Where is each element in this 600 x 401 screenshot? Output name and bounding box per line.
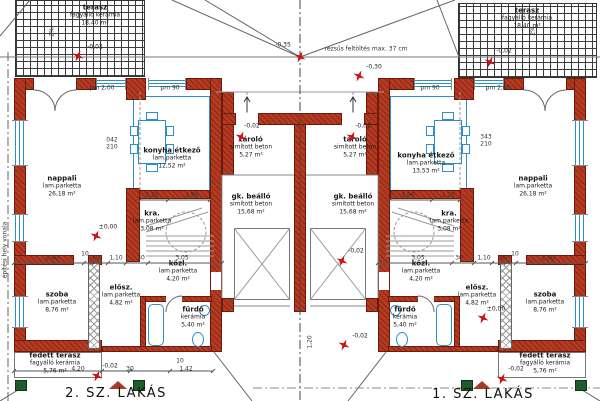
room-area: 15,68 m² [230,208,272,215]
chair [442,112,454,120]
room-finish: lam.parketta [159,268,197,275]
room-name: terasz [502,7,552,15]
room-label: kra.lam.parketta3,08 m² [430,210,468,233]
dimension-text: 1,90 [401,192,414,199]
room-label: szobalam.parketta8,76 m² [38,291,76,314]
wall [258,113,342,125]
room-area: 13,53 m² [397,167,454,174]
room-finish: lam.parketta [526,299,564,306]
wall [126,78,146,100]
window [12,296,28,328]
level-value: -0,02 [496,48,512,55]
dimension-text: 1,42 [179,366,192,373]
floor-plan-canvas: 2. SZ. LAKÁS 1. SZ. LAKÁS teraszfagyálló… [0,0,600,401]
room-area: 5,40 m² [393,321,417,328]
door-opening [524,79,566,89]
dimension-text: 10 [81,251,89,258]
room-area: 26,18 m² [514,190,552,197]
dimension-text: pm 2,00 [486,85,511,92]
dimension-text: 2% [49,27,56,37]
wall [14,255,74,265]
chair [426,126,434,136]
dimension-text: 4,20 [71,366,84,373]
room-area: 18,40 m² [502,22,552,29]
room-label: gk. beállósimított beton15,68 m² [230,193,272,216]
room-name: konyha étkező [397,152,454,160]
chair [166,126,174,136]
room-area: 5,76 m² [519,367,570,374]
room-area: 5,27 m² [230,151,272,158]
room-name: kra. [430,210,468,218]
room-name: fedett terasz [29,352,80,360]
dimension-text: 30 [126,366,134,373]
room-label: fedett teraszfagyálló kerámia5,76 m² [519,352,570,375]
room-finish: lam.parketta [514,183,552,190]
toilet-right [396,332,408,347]
bathtub-right [436,304,452,346]
room-finish: lam.parketta [133,218,171,225]
dimension-text: 30 [137,255,145,262]
dimension-text: 3,05 [411,255,424,262]
wall [366,298,378,312]
room-label: elősz.lam.parketta4,82 m² [102,284,140,307]
room-label: közl.lam.parketta4,20 m² [402,260,440,283]
wall [294,113,306,312]
window [572,120,588,166]
room-name: gk. beálló [332,193,374,201]
toilet-left [192,332,204,347]
room-label: elősz.lam.parketta4,82 m² [458,284,496,307]
dimension-text: 2,40 [45,255,58,262]
room-finish: kerámia [181,314,205,321]
room-label: gk. beállósimított beton15,68 m² [332,193,374,216]
room-label: fürdőkerámia5,40 m² [393,306,417,329]
door-opening [379,272,389,290]
level-value: -0,02 [508,366,524,373]
room-label: teraszfagyálló kerámia18,40 m² [70,4,120,27]
room-finish: lam.parketta [143,155,200,162]
room-area: 5,40 m² [181,321,205,328]
room-name: tároló [334,136,376,144]
room-area: 8,76 m² [526,306,564,313]
room-name: kra. [133,210,171,218]
window [572,214,588,242]
room-label: nappalilam.parketta26,18 m² [514,175,552,198]
column-marker [15,380,27,391]
room-name: fürdő [181,306,205,314]
room-label: konyha étkezőlam.parketta12,52 m² [143,147,200,170]
level-value: -0,02 [352,333,368,340]
room-label: fürdőkerámia5,40 m² [181,306,205,329]
level-marker-icon [351,68,367,84]
room-label: nappalilam.parketta26,18 m² [43,175,81,198]
room-area: 12,52 m² [143,162,200,169]
room-finish: simított beton [334,144,376,151]
unit-title-right: 1. SZ. LAKÁS [432,387,534,401]
wall [388,346,498,352]
room-area: 4,20 m² [159,275,197,282]
level-value: -0,02 [348,248,364,255]
chair [130,144,138,154]
room-finish: kerámia [393,314,417,321]
wall [526,255,586,265]
room-finish: fagyálló kerámia [502,15,552,22]
wall [454,78,474,100]
dimension-text: 3,05 [175,255,188,262]
room-finish: lam.parketta [102,292,140,299]
room-name: tároló [230,136,272,144]
room-area: 8,76 m² [38,306,76,313]
dimension-text: 1,10 [109,255,122,262]
level-value: -0,30 [366,64,382,71]
level-value: -0,02 [244,123,260,130]
dimension-text: 30 [455,255,463,262]
room-name: fedett terasz [519,352,570,360]
room-area: 15,68 m² [332,208,374,215]
room-finish: lam.parketta [430,218,468,225]
room-name: szoba [526,291,564,299]
room-area: 5,27 m² [334,151,376,158]
room-area: 3,08 m² [430,225,468,232]
dimension-text: pm 90 [420,85,439,92]
room-label: konyha étkezőlam.parketta13,53 m² [397,152,454,175]
dimension-text: 210 [480,141,491,148]
dimension-text: 1,10 [441,192,454,199]
dimension-text: 343 [480,134,491,141]
room-label: szobalam.parketta8,76 m² [526,291,564,314]
dimension-text: 60 [500,255,508,262]
room-name: szoba [38,291,76,299]
chair [462,126,470,136]
dimension-text: rézsűs feltöltés max. 37 cm [325,46,408,53]
room-area: 18,40 m² [70,19,120,26]
room-label: teraszfagyálló kerámia18,40 m² [502,7,552,30]
chair [146,112,158,120]
dimension-text: 1,20 [307,335,314,348]
level-value: -0,35 [275,42,291,49]
dimension-text: 10 [511,251,519,258]
room-name: elősz. [458,284,496,292]
wall [222,113,236,125]
window [572,296,588,328]
dimension-text: pm 90 [160,85,179,92]
room-finish: lam.parketta [402,268,440,275]
dimension-text: építési hely vonala [2,222,9,279]
chair [462,144,470,154]
level-value: ±0,00 [487,306,505,313]
dimension-text: 1,10 [145,192,158,199]
door-opening [166,296,182,302]
room-finish: simított beton [230,201,272,208]
wall [222,92,234,175]
wardrobe-shaft-left [88,263,100,349]
column-marker [575,380,587,391]
door-opening [211,272,221,290]
room-finish: fagyálló kerámia [70,12,120,19]
room-finish: fagyálló kerámia [519,360,570,367]
chair [130,126,138,136]
room-finish: simított beton [332,201,374,208]
level-marker-icon [292,49,308,65]
room-area: 4,20 m² [402,275,440,282]
room-name: konyha étkező [143,147,200,155]
wall [222,298,234,312]
dimension-text: 1,90 [185,192,198,199]
room-label: közl.lam.parketta4,20 m² [159,260,197,283]
room-area: 3,08 m² [133,225,171,232]
room-label: kra.lam.parketta3,08 m² [133,210,171,233]
wall [102,346,212,352]
wall [140,296,146,348]
window [12,214,28,242]
room-finish: simított beton [230,144,272,151]
room-name: nappali [514,175,552,183]
dimension-text: 210 [106,144,117,151]
wall [210,78,222,352]
dimension-text: 2,40 [541,255,554,262]
dimension-text: 042 [106,137,117,144]
carport-slab-left [234,228,290,300]
door-opening [34,79,76,89]
dimension-text: 10 [176,358,184,365]
room-finish: lam.parketta [43,183,81,190]
level-marker-icon [336,337,352,353]
dimension-text: 60 [92,255,100,262]
window [12,120,28,166]
room-area: 4,82 m² [102,299,140,306]
room-name: terasz [70,4,120,12]
level-value: ±0,00 [99,224,117,231]
bathtub-left [148,304,164,346]
dimension-text: pm 2,00 [90,85,115,92]
room-name: fürdő [393,306,417,314]
level-value: -0,02 [355,123,371,130]
dimension-text: 2% [530,26,537,36]
unit-title-left: 2. SZ. LAKÁS [65,386,167,401]
room-finish: lam.parketta [397,160,454,167]
door-opening [418,296,434,302]
room-name: nappali [43,175,81,183]
room-name: elősz. [102,284,140,292]
room-finish: lam.parketta [38,299,76,306]
level-value: -0,02 [87,44,103,51]
dimension-text: 1,10 [477,255,490,262]
room-finish: lam.parketta [458,292,496,299]
room-name: gk. beálló [230,193,272,201]
level-value: -0,02 [102,363,118,370]
wall [366,92,378,175]
room-label: tárolósimított beton5,27 m² [230,136,272,159]
room-area: 26,18 m² [43,190,81,197]
carport-slab-right [310,228,366,300]
wall [378,78,390,352]
